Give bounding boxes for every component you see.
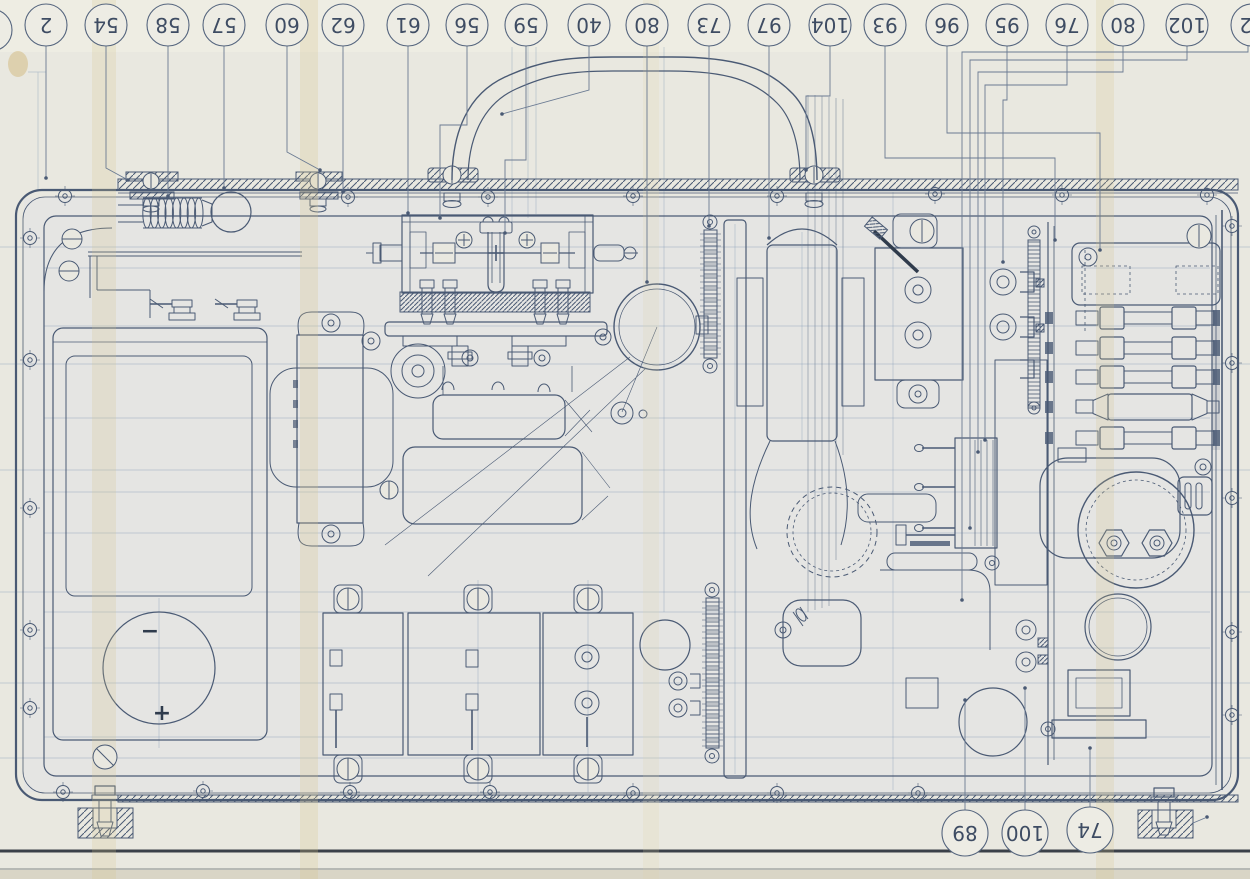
drawing-primitive xyxy=(293,380,298,388)
drawing-primitive xyxy=(500,112,504,116)
drawing-primitive: 102 xyxy=(1168,13,1206,37)
part-callout-61: 61 xyxy=(387,4,429,46)
drawing-primitive: 73 xyxy=(696,13,721,37)
drawing-primitive: 95 xyxy=(994,13,1019,37)
drawing-primitive xyxy=(503,231,507,235)
drawing-primitive xyxy=(44,176,48,180)
drawing-primitive xyxy=(1213,369,1220,385)
drawing-primitive xyxy=(1045,371,1053,383)
drawing-primitive xyxy=(706,598,719,748)
drawing-primitive xyxy=(0,870,1250,879)
drawing-primitive xyxy=(1098,248,1102,252)
drawing-primitive: 74 xyxy=(1077,818,1102,842)
assembly-drawing-svg: 2545857606261565940807397104939695768010… xyxy=(0,0,1250,879)
drawing-primitive xyxy=(643,0,659,879)
part-callout-60: 60 xyxy=(266,4,308,46)
drawing-primitive: 58 xyxy=(155,13,180,37)
part-callout-62: 62 xyxy=(322,4,364,46)
drawing-primitive xyxy=(963,698,967,702)
drawing-primitive: 56 xyxy=(454,13,479,37)
drawing-primitive: 57 xyxy=(211,13,236,37)
drawing-primitive: 96 xyxy=(934,13,959,37)
drawing-primitive: 100 xyxy=(1006,821,1044,845)
drawing-primitive xyxy=(910,541,950,546)
drawing-primitive xyxy=(1152,810,1176,828)
paper-background xyxy=(0,0,1250,879)
drawing-primitive xyxy=(300,0,318,879)
part-callout-89: 89 xyxy=(942,810,988,856)
part-callout-74: 74 xyxy=(1067,807,1113,853)
tab-screw xyxy=(337,758,359,780)
scanned-engineering-drawing-sheet: 2545857606261565940807397104939695768010… xyxy=(0,0,1250,879)
battery-plus-label: + xyxy=(153,701,171,726)
part-callout-73: 73 xyxy=(688,4,730,46)
slotted-screw xyxy=(62,229,82,249)
drawing-primitive xyxy=(645,280,649,284)
terminal-strip-lower xyxy=(706,598,719,748)
part-callout-80: 80 xyxy=(1102,4,1144,46)
drawing-primitive xyxy=(960,598,964,602)
drawing-primitive: 97 xyxy=(756,13,781,37)
part-callout-102: 102 xyxy=(1166,4,1208,46)
tab-screw xyxy=(577,758,599,780)
part-callout-59: 59 xyxy=(505,4,547,46)
relay-base-hatched xyxy=(400,292,590,312)
part-callout-57: 57 xyxy=(203,4,245,46)
slotted-screw xyxy=(93,745,117,769)
top-rail-section xyxy=(118,179,1238,190)
part-callout-56: 56 xyxy=(446,4,488,46)
part-callout-97: 97 xyxy=(748,4,790,46)
drawing-primitive xyxy=(166,194,170,198)
pin-board xyxy=(1028,240,1040,408)
drawing-primitive xyxy=(293,420,298,428)
drawing-primitive: 104 xyxy=(811,13,849,37)
drawing-primitive xyxy=(1213,430,1220,446)
drawing-primitive xyxy=(438,216,442,220)
drawing-primitive: 61 xyxy=(395,13,420,37)
part-callout-95: 95 xyxy=(986,4,1028,46)
drawing-primitive xyxy=(1038,655,1048,664)
drawing-primitive: 60 xyxy=(274,13,299,37)
part-callout-80: 80 xyxy=(626,4,668,46)
part-callout-96: 96 xyxy=(926,4,968,46)
battery-minus-label: − xyxy=(141,619,159,644)
drawing-primitive xyxy=(1023,686,1027,690)
drawing-primitive: 89 xyxy=(952,821,977,845)
drawing-primitive xyxy=(318,168,322,172)
part-callout-2: 2 xyxy=(25,4,67,46)
drawing-primitive xyxy=(1213,310,1220,326)
tab-screw xyxy=(577,588,599,610)
drawing-primitive xyxy=(1213,340,1220,356)
bottom-rail-section xyxy=(118,795,1238,802)
drawing-primitive xyxy=(222,186,226,190)
drawing-primitive: 54 xyxy=(93,13,118,37)
drawing-primitive xyxy=(341,190,345,194)
drawing-primitive: 59 xyxy=(513,13,538,37)
slotted-screw xyxy=(59,261,79,281)
terminal-strip-ticks xyxy=(700,234,721,354)
drawing-primitive: 76 xyxy=(1054,13,1079,37)
drawing-primitive: 62 xyxy=(330,13,355,37)
drawing-primitive: 80 xyxy=(634,13,659,37)
drawing-primitive: 40 xyxy=(576,13,601,37)
drawing-primitive xyxy=(406,211,410,215)
drawing-primitive xyxy=(293,400,298,408)
part-callout-54: 54 xyxy=(85,4,127,46)
drawing-primitive xyxy=(1053,238,1057,242)
tab-screw xyxy=(467,758,489,780)
drawing-primitive xyxy=(1045,312,1053,324)
drawing-primitive xyxy=(1045,432,1053,444)
part-callout-40: 40 xyxy=(568,4,610,46)
drawing-primitive xyxy=(1038,638,1048,647)
tab-screw xyxy=(467,588,489,610)
drawing-primitive xyxy=(1045,342,1053,354)
bottom-callout-row: 8910074 xyxy=(942,807,1113,856)
drawing-primitive: 82 xyxy=(1239,13,1250,37)
drawing-primitive xyxy=(968,526,972,530)
drawing-primitive xyxy=(707,224,711,228)
tab-screw xyxy=(337,588,359,610)
drawing-primitive: 2 xyxy=(40,13,53,37)
drawing-primitive: 93 xyxy=(872,13,897,37)
part-callout-100: 100 xyxy=(1002,810,1048,856)
drawing-primitive xyxy=(126,178,130,182)
part-callout-76: 76 xyxy=(1046,4,1088,46)
slotted-screw xyxy=(380,481,398,499)
paper-stain xyxy=(8,51,28,77)
drawing-primitive xyxy=(293,440,298,448)
drawing-primitive xyxy=(1045,401,1053,413)
drawing-primitive xyxy=(1028,240,1040,408)
drawing-primitive xyxy=(1205,815,1209,819)
part-callout-58: 58 xyxy=(147,4,189,46)
drawing-primitive xyxy=(1088,746,1092,750)
drawing-primitive xyxy=(1096,0,1114,879)
drawing-primitive xyxy=(767,236,771,240)
part-callout-93: 93 xyxy=(864,4,906,46)
drawing-primitive xyxy=(976,450,980,454)
drawing-primitive xyxy=(24,198,1230,792)
part-callout-104: 104 xyxy=(809,4,851,46)
drawing-primitive: 80 xyxy=(1110,13,1135,37)
drawing-primitive xyxy=(983,438,987,442)
drawing-primitive xyxy=(1001,260,1005,264)
drawing-primitive xyxy=(804,168,808,172)
